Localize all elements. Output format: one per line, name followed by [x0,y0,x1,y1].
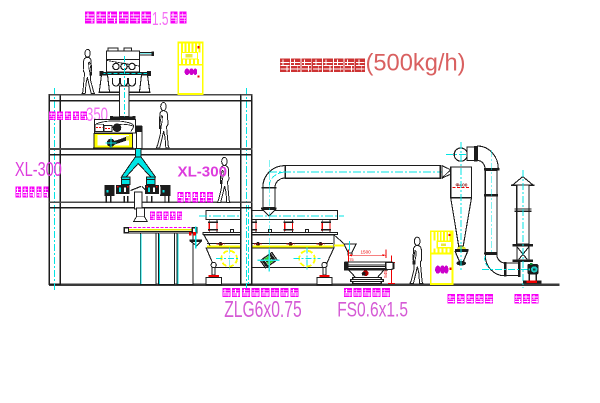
svg-text:ZLG6x0.75: ZLG6x0.75 [224,296,302,322]
svg-text:XL-300: XL-300 [15,158,62,181]
svg-text:75: 75 [349,257,354,262]
svg-text:1500: 1500 [361,250,372,255]
svg-text:FS0.6x1.5: FS0.6x1.5 [337,298,408,322]
svg-text:1.5: 1.5 [152,9,169,29]
svg-text:(500kg/h): (500kg/h) [366,50,466,77]
svg-text:Φ400: Φ400 [456,183,468,189]
svg-text:XL-300: XL-300 [178,165,228,181]
